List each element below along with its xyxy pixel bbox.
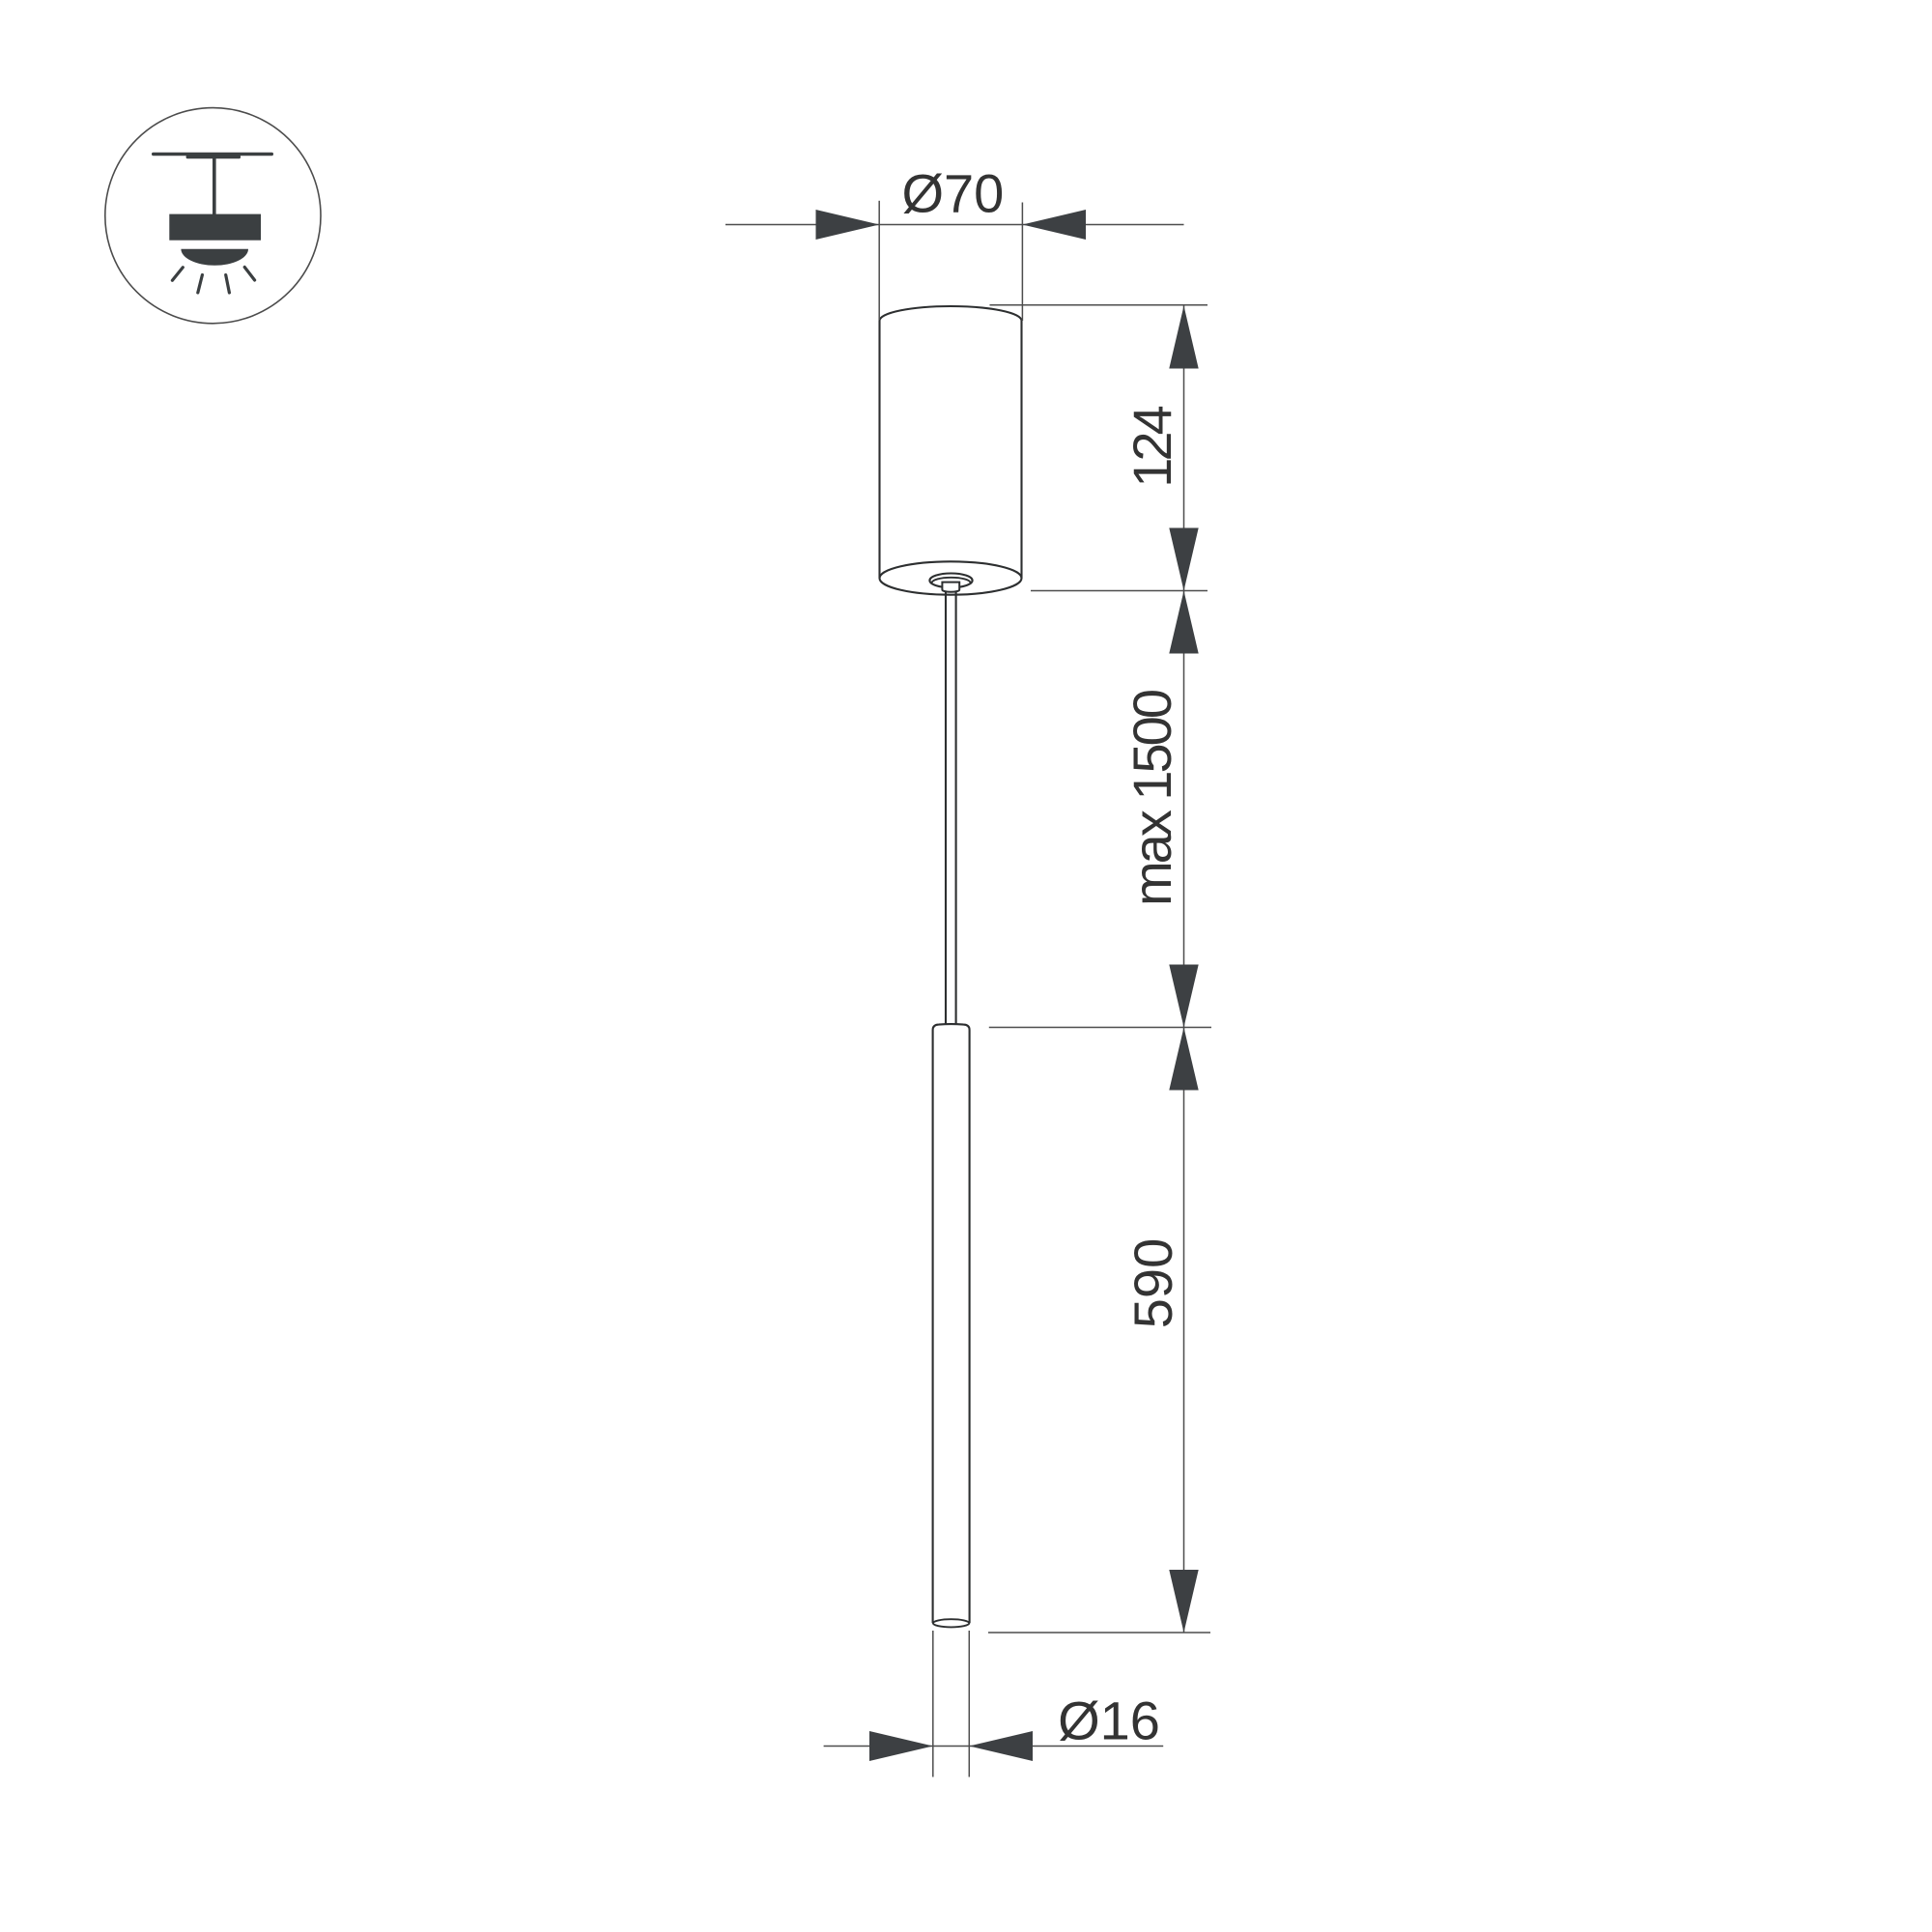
svg-text:max 1500: max 1500 [1122, 691, 1182, 906]
svg-text:124: 124 [1122, 406, 1182, 487]
svg-text:Ø16: Ø16 [1058, 1690, 1160, 1751]
svg-text:590: 590 [1122, 1238, 1183, 1328]
svg-text:Ø70: Ø70 [901, 162, 1004, 223]
